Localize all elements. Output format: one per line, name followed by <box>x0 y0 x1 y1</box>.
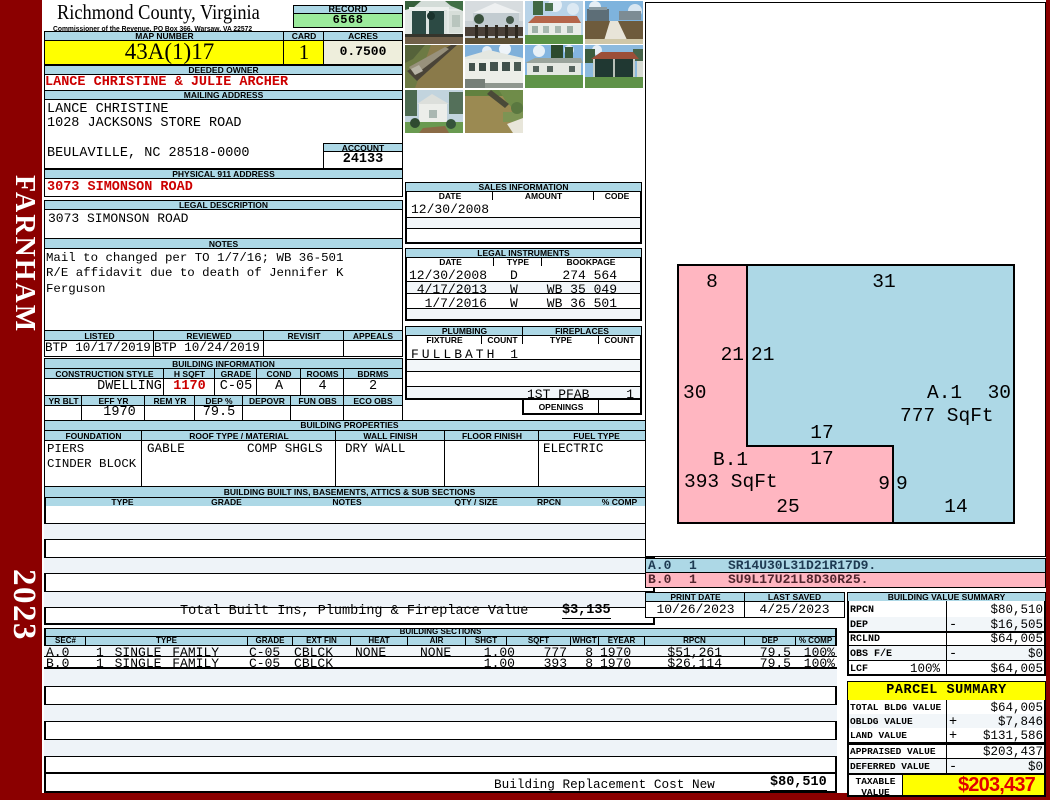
svg-text:393 SqFt: 393 SqFt <box>684 471 778 493</box>
svg-text:A.1: A.1 <box>927 382 962 404</box>
svg-text:21: 21 <box>751 344 774 366</box>
svg-text:9: 9 <box>896 473 908 495</box>
svg-text:30: 30 <box>988 382 1011 404</box>
svg-text:777 SqFt: 777 SqFt <box>900 405 994 427</box>
svg-text:25: 25 <box>776 496 799 518</box>
svg-text:30: 30 <box>683 382 706 404</box>
svg-text:8: 8 <box>706 271 718 293</box>
svg-text:31: 31 <box>872 271 895 293</box>
svg-text:14: 14 <box>944 496 967 518</box>
svg-text:17: 17 <box>810 422 833 444</box>
svg-text:9: 9 <box>878 473 890 495</box>
svg-text:17: 17 <box>810 448 833 470</box>
svg-text:B.1: B.1 <box>713 449 748 471</box>
svg-text:21: 21 <box>721 344 744 366</box>
